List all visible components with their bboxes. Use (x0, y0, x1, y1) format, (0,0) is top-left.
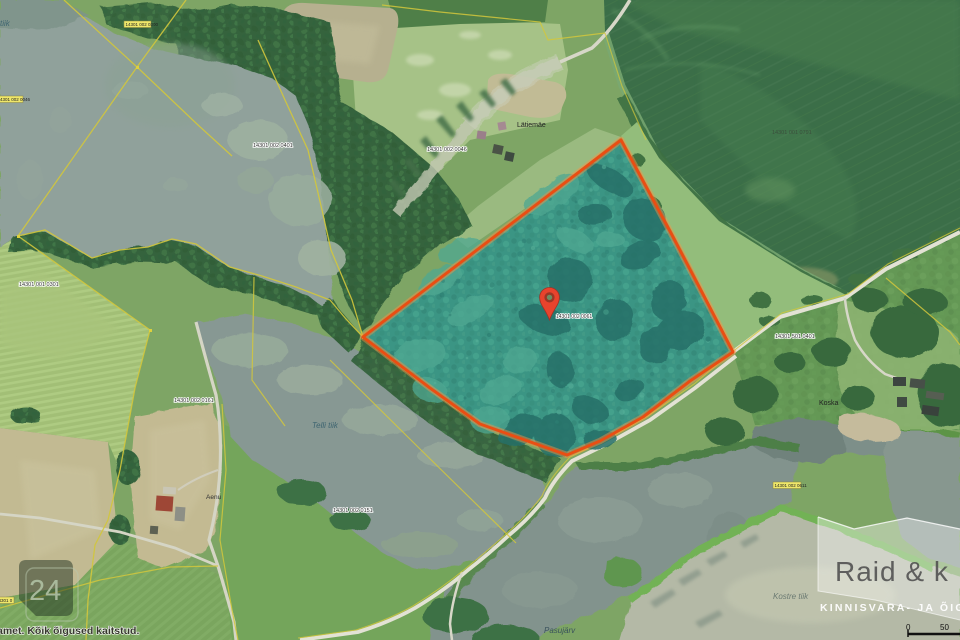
svg-text:14301 002 0046: 14301 002 0046 (427, 147, 467, 153)
svg-text:Telli tiik: Telli tiik (312, 421, 339, 430)
svg-text:Raid & k: Raid & k (835, 556, 949, 587)
svg-text:50: 50 (940, 623, 949, 632)
svg-text:14301 001 0301: 14301 001 0301 (19, 282, 59, 288)
svg-text:Aenu: Aenu (206, 494, 222, 501)
svg-text:amet. Kõik õigused kaitstud.: amet. Kõik õigused kaitstud. (0, 625, 139, 637)
svg-text:14301 002 0161: 14301 002 0161 (174, 398, 214, 404)
svg-text:24: 24 (29, 575, 61, 607)
svg-text:Lätiemäe: Lätiemäe (517, 122, 546, 129)
svg-text:KINNISVARA- JA ÕIGUS: KINNISVARA- JA ÕIGUS (820, 601, 960, 614)
svg-text:14301 001 0791: 14301 001 0791 (772, 130, 812, 136)
svg-text:14301 002 0061: 14301 002 0061 (556, 314, 592, 320)
svg-text:14301 501 0401: 14301 501 0401 (775, 334, 815, 340)
svg-text:Koska: Koska (819, 400, 839, 407)
svg-text:14301 002 0151: 14301 002 0151 (333, 508, 373, 514)
svg-text:14301 002 0300: 14301 002 0300 (126, 22, 159, 27)
svg-text:14301 002 0611: 14301 002 0611 (775, 483, 808, 488)
svg-text:14301 002 0046: 14301 002 0046 (0, 97, 31, 102)
svg-text:14301 0: 14301 0 (0, 598, 13, 603)
svg-text:14301 002 0401: 14301 002 0401 (253, 143, 293, 149)
svg-text:Kostre tiik: Kostre tiik (773, 592, 809, 601)
svg-text:tiik: tiik (0, 19, 11, 28)
svg-text:Pasujärv: Pasujärv (544, 626, 576, 635)
